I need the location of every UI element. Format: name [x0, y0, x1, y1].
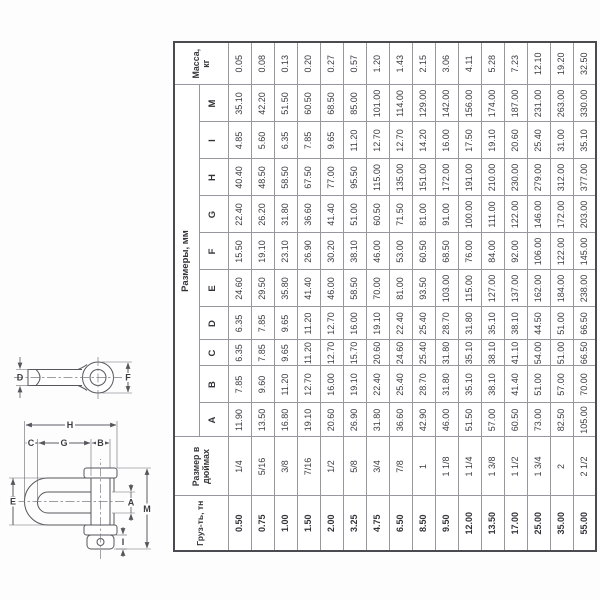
dimension-cell: 162.00 [527, 270, 550, 307]
dimension-cell: 44.50 [527, 307, 550, 340]
dimension-cell: 51.00 [550, 340, 573, 366]
dim-label-b: B [97, 438, 104, 448]
dimension-cell: 16.80 [274, 403, 297, 437]
dimension-cell: 238.00 [573, 270, 596, 307]
dimension-cell: 36.60 [389, 403, 412, 437]
dimension-cell: 66.50 [573, 340, 596, 366]
dimension-cell: 70.00 [573, 366, 596, 403]
dim-letter-header: E [199, 270, 228, 307]
dimension-cell: 312.00 [550, 159, 573, 196]
dimension-cell: 42.20 [251, 85, 274, 122]
col-header-size: Размер в дюймах [174, 437, 228, 496]
dimension-cell: 38.10 [481, 366, 504, 403]
mass-cell: 5.28 [481, 42, 504, 85]
dimension-cell: 81.00 [389, 270, 412, 307]
size-cell: 1 1/2 [504, 437, 527, 496]
load-cell: 1.50 [297, 496, 320, 551]
dimension-cell: 12.70 [389, 122, 412, 159]
table-row: 25.001 3/473.0051.0054.0044.50162.00106.… [527, 42, 550, 551]
dimension-cell: 92.00 [504, 233, 527, 270]
dimension-cell: 172.00 [550, 196, 573, 233]
dim-letter-header: G [199, 196, 228, 233]
col-header-size-line1: Размер в [191, 438, 201, 496]
dimension-cell: 14.20 [412, 122, 435, 159]
dimension-cell: 84.00 [481, 233, 504, 270]
dimension-cell: 7.85 [251, 307, 274, 340]
dim-label-g: G [60, 438, 67, 448]
dimension-cell: 9.65 [274, 340, 297, 366]
dimension-cell: 7.85 [251, 340, 274, 366]
col-header-size-line2: дюймах [201, 438, 211, 496]
mass-cell: 1.43 [389, 42, 412, 85]
dimension-cell: 135.00 [389, 159, 412, 196]
dim-letter-header: B [199, 366, 228, 403]
dim-letter-header: F [199, 233, 228, 270]
dimension-cell: 60.50 [504, 403, 527, 437]
dimension-cell: 142.00 [435, 85, 458, 122]
size-cell: 1 3/4 [527, 437, 550, 496]
dimension-cell: 137.00 [504, 270, 527, 307]
table-row: 13.501 3/857.0038.1038.1035.10127.0084.0… [481, 42, 504, 551]
size-cell: 2 1/2 [573, 437, 596, 496]
dimension-cell: 58.50 [343, 270, 366, 307]
mass-cell: 7.23 [504, 42, 527, 85]
dimension-cell: 26.90 [343, 403, 366, 437]
size-cell: 7/8 [389, 437, 412, 496]
dimension-cell: 60.50 [297, 85, 320, 122]
dimension-cell: 25.40 [389, 366, 412, 403]
table-row: 35.00282.5057.0051.0051.00184.00122.0017… [550, 42, 573, 551]
size-cell: 3/4 [366, 437, 389, 496]
dim-label-i: I [122, 537, 125, 547]
dimension-cell: 51.50 [458, 403, 481, 437]
mass-cell: 0.08 [251, 42, 274, 85]
table-body: 0.501/411.907.856.356.3524.6015.5022.404… [228, 42, 596, 551]
dimension-cell: 105.00 [573, 403, 596, 437]
dim-label-h: H [67, 420, 74, 430]
dimension-cell: 11.90 [228, 403, 251, 437]
dimension-cell: 129.00 [412, 85, 435, 122]
dimension-cell: 115.00 [366, 159, 389, 196]
dimension-cell: 11.20 [343, 122, 366, 159]
dimension-cell: 60.50 [366, 196, 389, 233]
dim-letter-header: H [199, 159, 228, 196]
table-row: 17.001 1/260.5041.4041.1038.10137.0092.0… [504, 42, 527, 551]
dimension-cell: 46.00 [435, 403, 458, 437]
dimension-cell: 111.00 [481, 196, 504, 233]
scanned-page: E C G B [0, 0, 600, 600]
dimension-cell: 20.60 [366, 340, 389, 366]
dimension-cell: 9.65 [320, 122, 343, 159]
dimension-cell: 16.00 [343, 307, 366, 340]
load-cell: 17.00 [504, 496, 527, 551]
mass-cell: 32.50 [573, 42, 596, 85]
mass-cell: 0.27 [320, 42, 343, 85]
dimension-cell: 38.10 [481, 340, 504, 366]
dimension-cell: 20.60 [320, 403, 343, 437]
pin-view: D F [14, 356, 133, 399]
dimension-cell: 16.00 [435, 122, 458, 159]
dimension-cell: 22.40 [366, 366, 389, 403]
dimension-cell: 57.00 [481, 403, 504, 437]
load-cell: 8.50 [412, 496, 435, 551]
dimension-cell: 38.10 [343, 233, 366, 270]
dimension-cell: 31.80 [435, 366, 458, 403]
col-header-load: Груз-ть, тн [174, 496, 228, 551]
size-cell: 1 [412, 437, 435, 496]
dimension-cell: 172.00 [435, 159, 458, 196]
dimension-cell: 29.50 [251, 270, 274, 307]
dimension-cell: 103.00 [435, 270, 458, 307]
dimension-cell: 9.65 [274, 307, 297, 340]
dimension-cell: 114.00 [389, 85, 412, 122]
dimension-cell: 38.10 [504, 307, 527, 340]
dimension-cell: 48.50 [251, 159, 274, 196]
load-cell: 6.50 [389, 496, 412, 551]
load-cell: 13.50 [481, 496, 504, 551]
dimension-cell: 25.40 [412, 340, 435, 366]
mass-cell: 0.20 [297, 42, 320, 85]
dimension-cell: 13.50 [251, 403, 274, 437]
dimension-cell: 68.50 [435, 233, 458, 270]
dim-label-m: M [143, 504, 151, 514]
dim-letter-header: I [199, 122, 228, 159]
dimension-cell: 40.40 [228, 159, 251, 196]
table-row: 4.753/431.8022.4020.6019.1070.0046.0060.… [366, 42, 389, 551]
size-cell: 1/4 [228, 437, 251, 496]
dimension-cell: 115.00 [458, 270, 481, 307]
dimension-cell: 35.10 [458, 366, 481, 403]
table-row: 9.501 1/846.0031.8031.8028.70103.0068.50… [435, 42, 458, 551]
table-row: 8.50142.9028.7025.4025.4093.5060.5081.00… [412, 42, 435, 551]
rotated-document: E C G B [0, 0, 600, 600]
dimension-cell: 12.70 [320, 307, 343, 340]
mass-cell: 0.57 [343, 42, 366, 85]
dim-label-c: C [28, 438, 35, 448]
table-row: 6.507/836.6025.4024.6022.4081.0053.0071.… [389, 42, 412, 551]
dimension-cell: 85.00 [343, 85, 366, 122]
dimension-cell: 54.00 [527, 340, 550, 366]
load-cell: 9.50 [435, 496, 458, 551]
table-row: 2.001/220.6016.0012.7012.7046.0030.2041.… [320, 42, 343, 551]
dimension-cell: 146.00 [527, 196, 550, 233]
table-row: 1.003/816.8011.209.659.6535.8023.1031.80… [274, 42, 297, 551]
dimension-cell: 36.60 [297, 196, 320, 233]
dimension-cell: 95.50 [343, 159, 366, 196]
dim-letter-header: A [199, 403, 228, 437]
dimension-cell: 100.00 [458, 196, 481, 233]
dimension-cell: 31.80 [435, 340, 458, 366]
load-cell: 12.00 [458, 496, 481, 551]
size-cell: 5/8 [343, 437, 366, 496]
size-cell: 7/16 [297, 437, 320, 496]
col-header-mass-line2: кг [201, 43, 211, 85]
dimension-cell: 23.10 [274, 233, 297, 270]
size-cell: 1 3/8 [481, 437, 504, 496]
dimension-cell: 51.00 [527, 366, 550, 403]
dimension-cell: 30.20 [320, 233, 343, 270]
dimension-cell: 15.50 [228, 233, 251, 270]
dimension-cell: 191.00 [458, 159, 481, 196]
dimension-cell: 60.50 [412, 233, 435, 270]
dimension-cell: 6.35 [274, 122, 297, 159]
size-cell: 5/16 [251, 437, 274, 496]
dimension-cell: 35.10 [573, 122, 596, 159]
dimension-cell: 122.00 [550, 233, 573, 270]
dimension-cell: 231.00 [527, 85, 550, 122]
dim-label-a: A [128, 498, 135, 508]
dimension-cell: 106.00 [527, 233, 550, 270]
dim-label-d: D [17, 373, 24, 383]
dimension-cell: 279.00 [527, 159, 550, 196]
dimension-cell: 4.85 [228, 122, 251, 159]
dimension-cell: 82.50 [550, 403, 573, 437]
mass-cell: 0.13 [274, 42, 297, 85]
dimension-cell: 51.00 [550, 307, 573, 340]
dimension-cell: 51.00 [343, 196, 366, 233]
body-dimensions: E C G B [8, 420, 153, 557]
dim-letter-header: C [199, 340, 228, 366]
dimension-cell: 58.50 [274, 159, 297, 196]
load-cell: 35.00 [550, 496, 573, 551]
table-row: 0.755/1613.509.607.857.8529.5019.1026.20… [251, 42, 274, 551]
load-cell: 2.00 [320, 496, 343, 551]
dimension-cell: 203.00 [573, 196, 596, 233]
dimension-cell: 6.35 [228, 340, 251, 366]
dimension-cell: 26.90 [297, 233, 320, 270]
dimension-cell: 156.00 [458, 85, 481, 122]
dimension-cell: 35.10 [458, 340, 481, 366]
dimension-cell: 11.20 [297, 307, 320, 340]
dimension-cell: 35.80 [274, 270, 297, 307]
dimension-cell: 91.00 [435, 196, 458, 233]
dimension-cell: 93.50 [412, 270, 435, 307]
mass-cell: 2.15 [412, 42, 435, 85]
dim-label-e: E [10, 497, 16, 507]
dimension-cell: 35.10 [481, 307, 504, 340]
dimension-cell: 19.10 [251, 233, 274, 270]
dimension-cell: 12.70 [320, 340, 343, 366]
dimension-cell: 230.00 [504, 159, 527, 196]
dimension-cell: 210.00 [481, 159, 504, 196]
dimension-cell: 9.60 [251, 366, 274, 403]
load-cell: 4.75 [366, 496, 389, 551]
dimension-cell: 81.00 [412, 196, 435, 233]
dimension-cell: 122.00 [504, 196, 527, 233]
load-cell: 0.75 [251, 496, 274, 551]
dimension-cell: 7.85 [228, 366, 251, 403]
mass-cell: 1.20 [366, 42, 389, 85]
table-row: 55.002 1/2105.0070.0066.5066.50238.00145… [573, 42, 596, 551]
dimension-cell: 67.50 [297, 159, 320, 196]
dimension-cell: 7.85 [297, 122, 320, 159]
dimension-cell: 15.70 [343, 340, 366, 366]
dimension-cell: 101.00 [366, 85, 389, 122]
dimension-cell: 41.40 [297, 270, 320, 307]
table-row: 1.507/1619.1012.7011.2011.2041.4026.9036… [297, 42, 320, 551]
dimension-cell: 24.60 [228, 270, 251, 307]
load-cell: 0.50 [228, 496, 251, 551]
dimension-cell: 68.50 [320, 85, 343, 122]
table-row: 0.501/411.907.856.356.3524.6015.5022.404… [228, 42, 251, 551]
col-header-mass-line1: Масса, [191, 43, 201, 85]
dimension-cell: 46.00 [366, 233, 389, 270]
dimension-cell: 19.10 [297, 403, 320, 437]
dimension-cell: 26.20 [251, 196, 274, 233]
size-cell: 1 1/8 [435, 437, 458, 496]
dimension-cell: 66.50 [573, 307, 596, 340]
dimension-cell: 6.35 [228, 307, 251, 340]
dimension-cell: 53.00 [389, 233, 412, 270]
dimension-cell: 19.10 [343, 366, 366, 403]
dimension-cell: 41.40 [320, 196, 343, 233]
dimension-cell: 77.00 [320, 159, 343, 196]
dimension-cell: 35.10 [228, 85, 251, 122]
dimension-cell: 24.60 [389, 340, 412, 366]
dimension-cell: 187.00 [504, 85, 527, 122]
dimension-cell: 330.00 [573, 85, 596, 122]
dimension-cell: 19.10 [481, 122, 504, 159]
dimension-cell: 28.70 [412, 366, 435, 403]
dimension-cell: 31.00 [550, 122, 573, 159]
col-header-dimensions-group: Размеры, мм [174, 85, 199, 437]
load-cell: 3.25 [343, 496, 366, 551]
dimension-cell: 151.00 [412, 159, 435, 196]
dimension-cell: 12.70 [297, 366, 320, 403]
size-cell: 3/8 [274, 437, 297, 496]
dimension-cell: 51.50 [274, 85, 297, 122]
load-cell: 1.00 [274, 496, 297, 551]
dimension-cell: 174.00 [481, 85, 504, 122]
mass-cell: 4.11 [458, 42, 481, 85]
dimension-cell: 57.00 [550, 366, 573, 403]
dimension-cell: 16.00 [320, 366, 343, 403]
dimension-cell: 377.00 [573, 159, 596, 196]
dimension-cell: 20.60 [504, 122, 527, 159]
size-cell: 1 1/4 [458, 437, 481, 496]
dimension-cell: 5.60 [251, 122, 274, 159]
dim-letter-header: M [199, 85, 228, 122]
size-cell: 1/2 [320, 437, 343, 496]
load-cell: 25.00 [527, 496, 550, 551]
dimension-cell: 76.00 [458, 233, 481, 270]
dimension-cell: 263.00 [550, 85, 573, 122]
dimension-cell: 31.80 [366, 403, 389, 437]
shackle-dimensions-table: Груз-ть, тн Размер в дюймах Размеры, мм … [173, 41, 597, 552]
dimension-cell: 19.10 [366, 307, 389, 340]
size-cell: 2 [550, 437, 573, 496]
dimension-cell: 28.70 [435, 307, 458, 340]
dimension-cell: 73.00 [527, 403, 550, 437]
dimension-cell: 184.00 [550, 270, 573, 307]
dimension-cell: 145.00 [573, 233, 596, 270]
dimension-cell: 127.00 [481, 270, 504, 307]
mass-cell: 12.10 [527, 42, 550, 85]
shackle-body [16, 459, 126, 559]
dimension-cell: 25.40 [527, 122, 550, 159]
dimension-cell: 12.70 [366, 122, 389, 159]
dimension-cell: 22.40 [389, 307, 412, 340]
table-row: 3.255/826.9019.1015.7016.0058.5038.1051.… [343, 42, 366, 551]
dimension-cell: 46.00 [320, 270, 343, 307]
dimension-cell: 17.50 [458, 122, 481, 159]
dimension-cell: 31.80 [274, 196, 297, 233]
dim-letter-header: D [199, 307, 228, 340]
dimension-cell: 41.10 [504, 340, 527, 366]
dim-label-f: F [125, 373, 131, 383]
dimension-cell: 11.20 [274, 366, 297, 403]
dimension-cell: 41.40 [504, 366, 527, 403]
dimension-cell: 71.50 [389, 196, 412, 233]
load-cell: 55.00 [573, 496, 596, 551]
dimension-cell: 42.90 [412, 403, 435, 437]
mass-cell: 19.20 [550, 42, 573, 85]
dimension-cell: 31.80 [458, 307, 481, 340]
dimension-cell: 11.20 [297, 340, 320, 366]
table-row: 12.001 1/451.5035.1035.1031.80115.0076.0… [458, 42, 481, 551]
dimension-cell: 70.00 [366, 270, 389, 307]
dimension-cell: 22.40 [228, 196, 251, 233]
dimension-cell: 25.40 [412, 307, 435, 340]
shackle-diagram: E C G B [3, 335, 168, 565]
col-header-mass: Масса, кг [174, 42, 228, 85]
mass-cell: 0.05 [228, 42, 251, 85]
mass-cell: 3.06 [435, 42, 458, 85]
